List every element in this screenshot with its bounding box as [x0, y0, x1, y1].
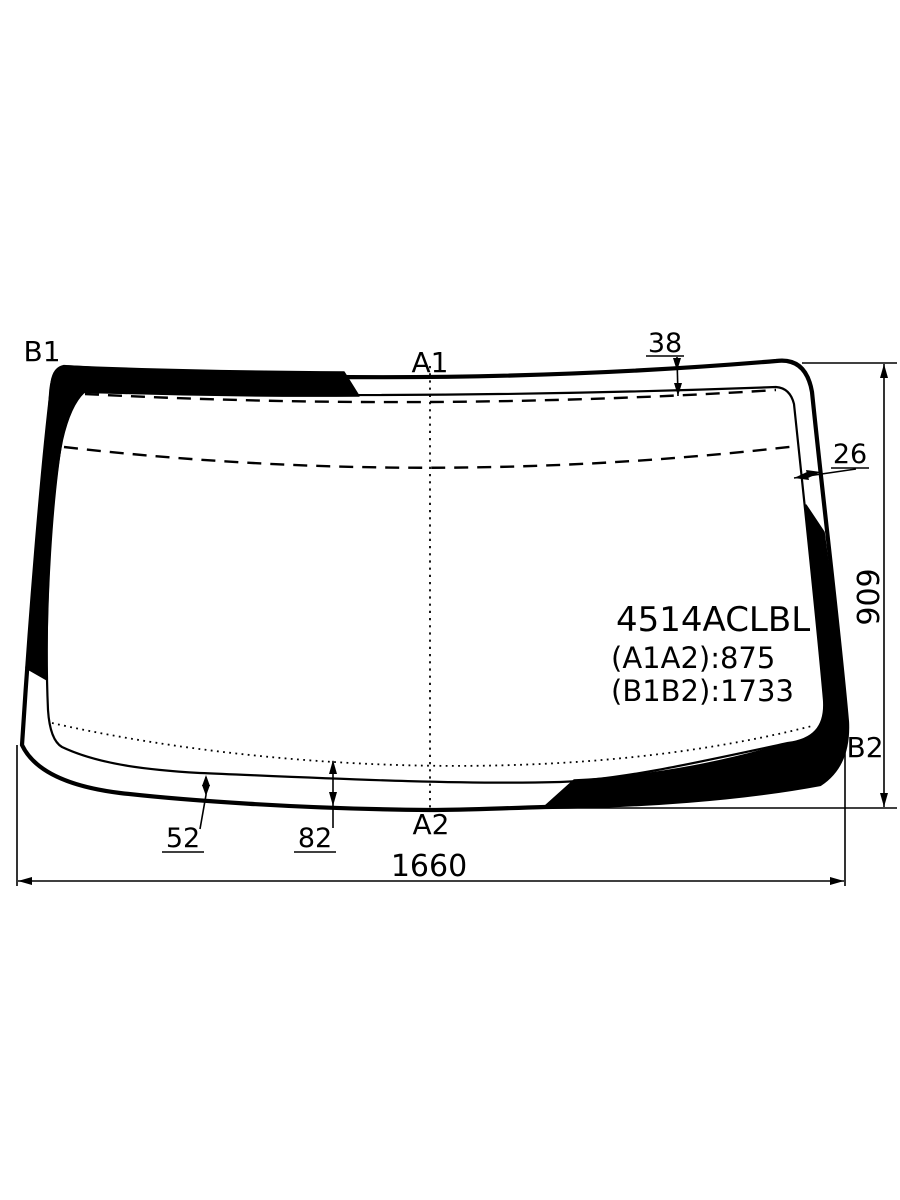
dim-value-52: 52 [166, 823, 200, 854]
spec-b1b2: (B1B2):1733 [611, 674, 794, 708]
label-b2: B2 [846, 731, 883, 764]
dim-value-82: 82 [298, 823, 332, 854]
label-a1: A1 [412, 346, 449, 379]
label-b1: B1 [23, 335, 60, 368]
windshield-dimension-diagram: B1 A1 A2 B2 38 26 52 82 1660 909 4514ACL… [0, 0, 900, 1200]
part-number: 4514ACLBL [616, 600, 810, 640]
dim-value-1660: 1660 [391, 849, 467, 884]
dim-value-909: 909 [852, 568, 887, 625]
dim-value-38: 38 [648, 328, 682, 359]
glass-linework [22, 361, 847, 810]
label-a2: A2 [413, 808, 450, 841]
windshield-diagram-page: B1 A1 A2 B2 38 26 52 82 1660 909 4514ACL… [0, 0, 900, 1200]
spec-a1a2: (A1A2):875 [611, 641, 775, 675]
dim-value-26: 26 [833, 439, 867, 470]
windshield-outer-outline [22, 361, 847, 810]
